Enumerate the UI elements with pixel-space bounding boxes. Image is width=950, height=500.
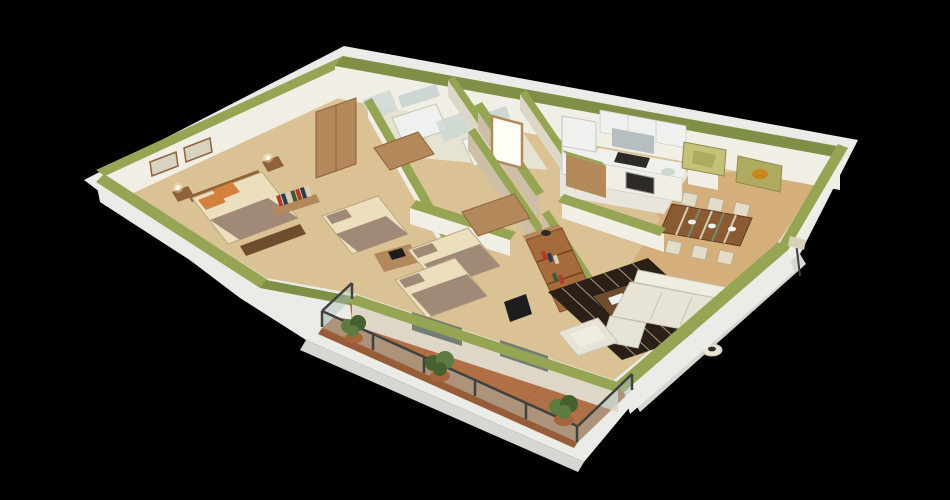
kitchen-sink [661, 168, 675, 176]
floorplan-svg [0, 0, 950, 500]
bedside-lamp [176, 186, 181, 191]
painting-detail [752, 169, 768, 179]
floorplan-render [0, 0, 950, 500]
decor-bowl [541, 230, 551, 236]
side-table-bowl [708, 347, 716, 352]
bedside-lamp [266, 156, 271, 161]
